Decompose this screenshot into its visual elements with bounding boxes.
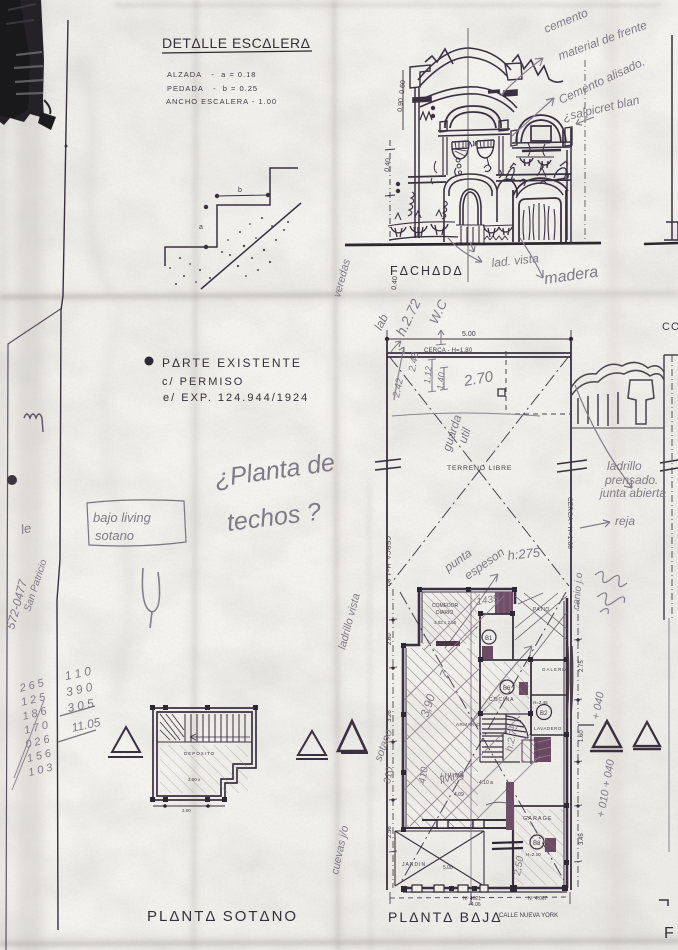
svg-text:reja: reja (615, 514, 635, 528)
svg-text:0.40: 0.40 (391, 276, 399, 290)
svg-text:JARDIN: JARDIN (402, 862, 426, 868)
svg-text:B2: B2 (540, 711, 548, 717)
svg-text:FΔCHΔDΔ: FΔCHΔDΔ (390, 264, 464, 278)
svg-text:c/ PERMISO: c/ PERMISO (162, 376, 244, 388)
svg-text:CERCA. H=1.80: CERCA. H=1.80 (384, 536, 391, 586)
svg-text:ALZADA - a = 0.18: ALZADA - a = 0.18 (167, 70, 256, 79)
svg-text:ANCHO ESCALERA - 1.00: ANCHO ESCALERA - 1.00 (166, 97, 277, 106)
svg-text:CO: CO (662, 321, 678, 333)
svg-text:5.00: 5.00 (443, 865, 453, 871)
svg-text:B8: B8 (533, 841, 541, 847)
svg-text:2.56: 2.56 (387, 826, 393, 838)
svg-text:PLΔNTΔ BΔJΔ: PLΔNTΔ BΔJΔ (388, 909, 503, 925)
svg-text:CERCA - H=1.80: CERCA - H=1.80 (424, 348, 473, 354)
svg-text:0.40: 0.40 (384, 158, 392, 172)
svg-text:GALERIA: GALERIA (542, 667, 569, 672)
svg-text:junta abierta: junta abierta (598, 486, 666, 500)
svg-text:3.45: 3.45 (579, 833, 585, 845)
svg-text:COMEDOR: COMEDOR (432, 603, 459, 609)
svg-text:CALLE NUEVA YORK: CALLE NUEVA YORK (499, 913, 558, 919)
svg-text:PEDADA - b = 0.25: PEDADA - b = 0.25 (167, 84, 258, 93)
svg-text:5.00: 5.00 (462, 331, 476, 338)
svg-text:H=2.45: H=2.45 (533, 700, 548, 705)
svg-text:b: b (238, 187, 242, 194)
svg-text:B1: B1 (485, 636, 493, 642)
svg-text:+4.06: +4.06 (468, 902, 481, 908)
svg-text:1.40: 1.40 (435, 372, 446, 390)
svg-text:sotano: sotano (95, 528, 134, 543)
svg-text:3.00 x: 3.00 x (188, 777, 201, 782)
svg-text:e/ EXP. 124.944/1924: e/ EXP. 124.944/1924 (163, 392, 309, 404)
svg-text:LAVADERO: LAVADERO (534, 726, 562, 731)
svg-text:2.60: 2.60 (387, 633, 393, 645)
svg-text:3.26: 3.26 (387, 710, 393, 722)
svg-text:H=2.10: H=2.10 (526, 852, 541, 857)
svg-text:B6: B6 (503, 686, 511, 692)
svg-text:2.75: 2.75 (579, 660, 585, 672)
svg-text:DETΔLLE ESCΔLERΔ: DETΔLLE ESCΔLERΔ (162, 35, 312, 51)
svg-text:TERRENO LIBRE: TERRENO LIBRE (447, 465, 512, 472)
svg-text:CERCA - H=1.80: CERCA - H=1.80 (566, 497, 573, 549)
svg-text:F: F (664, 925, 676, 942)
svg-text:a: a (199, 224, 203, 231)
svg-text:bajo living: bajo living (93, 510, 152, 525)
svg-text:DEPOSITO: DEPOSITO (184, 751, 215, 756)
svg-text:COCINA: COCINA (489, 697, 514, 703)
svg-text:3.00: 3.00 (182, 808, 191, 813)
svg-text:4.09: 4.09 (454, 792, 464, 798)
svg-text:PLΔNTΔ SOTΔNO: PLΔNTΔ SOTΔNO (147, 908, 298, 925)
svg-text:0.90: 0.90 (397, 98, 405, 112)
svg-text:GARAGE: GARAGE (523, 816, 553, 822)
svg-text:ladrillo: ladrillo (607, 459, 642, 473)
svg-text:PΔRTE EXISTENTE: PΔRTE EXISTENTE (162, 356, 302, 370)
svg-text:1.60: 1.60 (579, 730, 585, 742)
svg-text:DIARIO: DIARIO (436, 610, 453, 616)
svg-text:Nº 4.067: Nº 4.067 (528, 896, 548, 902)
